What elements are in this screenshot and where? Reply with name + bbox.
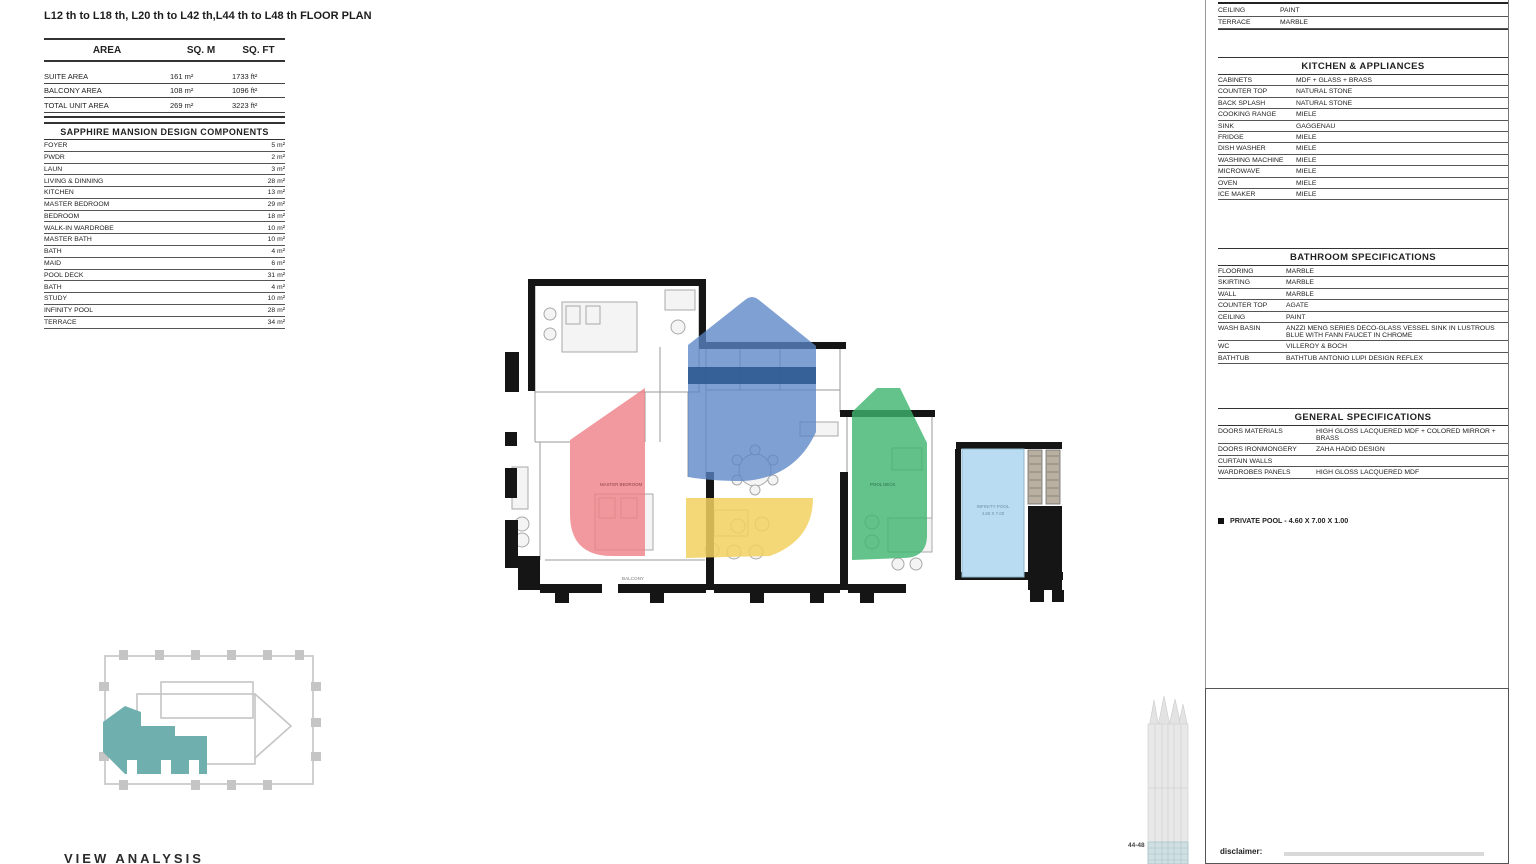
table-cell: MIELE bbox=[1296, 134, 1508, 141]
table-row: PWDR2 m² bbox=[44, 152, 285, 164]
table-cell: VILLEROY & BOCH bbox=[1286, 343, 1508, 350]
table-cell: FRIDGE bbox=[1218, 134, 1296, 141]
table-cell: HIGH GLOSS LACQUERED MDF bbox=[1316, 469, 1508, 476]
table-cell: DOORS IRONMONGERY bbox=[1218, 446, 1316, 453]
table-cell: 18 m² bbox=[243, 213, 285, 220]
tower-crown-spikes bbox=[1149, 696, 1188, 728]
table-row: STUDY10 m² bbox=[44, 293, 285, 305]
table-cell: ANZZI MENG SERIES DECO-GLASS VESSEL SINK… bbox=[1286, 325, 1508, 339]
table-cell: 10 m² bbox=[243, 236, 285, 243]
table-cell: AGATE bbox=[1286, 302, 1508, 309]
private-pool-note-text: PRIVATE POOL - 4.60 X 7.00 X 1.00 bbox=[1230, 516, 1348, 525]
table-cell: COUNTER TOP bbox=[1218, 302, 1286, 309]
kitchen-table-body: CABINETSMDF + GLASS + BRASSCOUNTER TOPNA… bbox=[1218, 75, 1508, 200]
table-cell: SINK bbox=[1218, 123, 1296, 130]
table-cell: MAID bbox=[44, 260, 243, 267]
table-cell: ICE MAKER bbox=[1218, 191, 1296, 198]
private-pool-note: PRIVATE POOL - 4.60 X 7.00 X 1.00 bbox=[1218, 516, 1348, 525]
table-row: CEILINGPAINT bbox=[1218, 4, 1508, 17]
table-row: DISH WASHERMIELE bbox=[1218, 143, 1508, 154]
overlay-red bbox=[570, 388, 645, 556]
table-row: BATHTUBBATHTUB ANTONIO LUPI DESIGN REFLE… bbox=[1218, 353, 1508, 364]
table-row: FOYER5 m² bbox=[44, 140, 285, 152]
table-cell: TERRACE bbox=[1218, 19, 1280, 26]
key-plan bbox=[95, 642, 325, 797]
table-cell: MICROWAVE bbox=[1218, 168, 1296, 175]
overlay-yellow bbox=[686, 498, 813, 558]
table-cell: GAGGENAU bbox=[1296, 123, 1508, 130]
table-row: WASHING MACHINEMIELE bbox=[1218, 155, 1508, 166]
table-cell: CEILING bbox=[1218, 314, 1286, 321]
table-cell: 28 m² bbox=[243, 307, 285, 314]
table-cell: MIELE bbox=[1296, 180, 1508, 187]
table-row: COUNTER TOPNATURAL STONE bbox=[1218, 86, 1508, 97]
bathroom-table: BATHROOM SPECIFICATIONS FLOORINGMARBLESK… bbox=[1218, 248, 1508, 364]
table-row: BEDROOM18 m² bbox=[44, 211, 285, 223]
table-row: DOORS MATERIALSHIGH GLOSS LACQUERED MDF … bbox=[1218, 426, 1508, 444]
table-cell: 4 m² bbox=[243, 284, 285, 291]
table-cell: MARBLE bbox=[1286, 268, 1508, 275]
table-cell: BALCONY AREA bbox=[44, 86, 170, 95]
disclaimer-box: disclaimer: bbox=[1205, 688, 1509, 864]
table-cell: HIGH GLOSS LACQUERED MDF + COLORED MIRRO… bbox=[1316, 428, 1508, 442]
table-cell: NATURAL STONE bbox=[1296, 88, 1508, 95]
table-row: FRIDGEMIELE bbox=[1218, 132, 1508, 143]
table-row: BALCONY AREA108 m²1096 ft² bbox=[44, 84, 285, 99]
table-row: MASTER BEDROOM29 m² bbox=[44, 199, 285, 211]
table-cell: PAINT bbox=[1280, 7, 1508, 14]
table-cell: 28 m² bbox=[243, 178, 285, 185]
table-cell: LAUN bbox=[44, 166, 243, 173]
table-cell: KITCHEN bbox=[44, 189, 243, 196]
table-cell: MIELE bbox=[1296, 191, 1508, 198]
table-cell: 13 m² bbox=[243, 189, 285, 196]
bathroom-table-body: FLOORINGMARBLESKIRTINGMARBLEWALLMARBLECO… bbox=[1218, 266, 1508, 364]
table-row: BACK SPLASHNATURAL STONE bbox=[1218, 98, 1508, 109]
table-cell: COUNTER TOP bbox=[1218, 88, 1296, 95]
bathroom-table-title: BATHROOM SPECIFICATIONS bbox=[1218, 249, 1508, 266]
table-row: COOKING RANGEMIELE bbox=[1218, 109, 1508, 120]
table-cell: WALK-IN WARDROBE bbox=[44, 225, 243, 232]
table-row: FLOORINGMARBLE bbox=[1218, 266, 1508, 277]
table-row: KITCHEN13 m² bbox=[44, 187, 285, 199]
table-cell: 108 m² bbox=[170, 86, 232, 95]
table-cell: CABINETS bbox=[1218, 77, 1296, 84]
tower-silhouette: 44-48 bbox=[1128, 696, 1214, 864]
table-cell: MIELE bbox=[1296, 157, 1508, 164]
table-cell: TOTAL UNIT AREA bbox=[44, 101, 170, 110]
table-cell: INFINITY POOL bbox=[44, 307, 243, 314]
general-table-title: GENERAL SPECIFICATIONS bbox=[1218, 409, 1508, 426]
table-cell: CURTAIN WALLS bbox=[1218, 458, 1316, 465]
table-row: MASTER BATH10 m² bbox=[44, 234, 285, 246]
table-row: MAID6 m² bbox=[44, 258, 285, 270]
kitchen-table-title: KITCHEN & APPLIANCES bbox=[1218, 58, 1508, 75]
table-cell: DOORS MATERIALS bbox=[1218, 428, 1316, 435]
table-cell: MASTER BEDROOM bbox=[44, 201, 243, 208]
area-table-header: AREASQ. MSQ. FT bbox=[44, 40, 285, 62]
table-row: COUNTER TOPAGATE bbox=[1218, 300, 1508, 311]
bullet-square-icon bbox=[1218, 518, 1224, 524]
table-row: WARDROBES PANELSHIGH GLOSS LACQUERED MDF bbox=[1218, 467, 1508, 478]
table-cell: SQ. FT bbox=[232, 45, 285, 56]
table-row: WASH BASINANZZI MENG SERIES DECO-GLASS V… bbox=[1218, 323, 1508, 341]
table-cell: FLOORING bbox=[1218, 268, 1286, 275]
table-row: SUITE AREA161 m²1733 ft² bbox=[44, 69, 285, 84]
table-cell: PWDR bbox=[44, 154, 243, 161]
table-cell: 10 m² bbox=[243, 295, 285, 302]
table-cell: TERRACE bbox=[44, 319, 243, 326]
table-cell: WARDROBES PANELS bbox=[1218, 469, 1316, 476]
infinity-pool-label: INFINITY POOL bbox=[976, 504, 1010, 509]
table-cell: 6 m² bbox=[243, 260, 285, 267]
table-cell: BATH bbox=[44, 248, 243, 255]
components-table-title: SAPPHIRE MANSION DESIGN COMPONENTS bbox=[44, 124, 285, 140]
table-row: WCVILLEROY & BOCH bbox=[1218, 341, 1508, 352]
table-cell: 29 m² bbox=[243, 201, 285, 208]
table-row: INFINITY POOL28 m² bbox=[44, 305, 285, 317]
table-cell: MASTER BATH bbox=[44, 236, 243, 243]
table-cell: SQ. M bbox=[170, 45, 232, 56]
view-analysis-heading: VIEW ANALYSIS bbox=[64, 851, 204, 864]
pool-deck-label: POOL DECK bbox=[870, 482, 896, 487]
table-cell: BATH bbox=[44, 284, 243, 291]
table-cell: 269 m² bbox=[170, 101, 232, 110]
table-cell: MDF + GLASS + BRASS bbox=[1296, 77, 1508, 84]
table-cell: SUITE AREA bbox=[44, 72, 170, 81]
table-cell: MIELE bbox=[1296, 111, 1508, 118]
table-cell: WALL bbox=[1218, 291, 1286, 298]
table-cell: 10 m² bbox=[243, 225, 285, 232]
table-cell: 34 m² bbox=[243, 319, 285, 326]
table-cell: MARBLE bbox=[1286, 291, 1508, 298]
area-table-body: SUITE AREA161 m²1733 ft²BALCONY AREA108 … bbox=[44, 69, 285, 118]
general-table-body: DOORS MATERIALSHIGH GLOSS LACQUERED MDF … bbox=[1218, 426, 1508, 479]
table-cell: BATHTUB ANTONIO LUPI DESIGN REFLEX bbox=[1286, 355, 1508, 362]
table-row: LAUN3 m² bbox=[44, 164, 285, 176]
table-cell: DISH WASHER bbox=[1218, 145, 1296, 152]
table-cell: COOKING RANGE bbox=[1218, 111, 1296, 118]
disclaimer-fine-print bbox=[1284, 852, 1484, 856]
floor-plan-sheet: L12 th to L18 th, L20 th to L42 th,L44 t… bbox=[0, 0, 1536, 864]
table-cell: 3 m² bbox=[243, 166, 285, 173]
table-cell: OVEN bbox=[1218, 180, 1296, 187]
page-title: L12 th to L18 th, L20 th to L42 th,L44 t… bbox=[44, 10, 372, 22]
table-cell: 2 m² bbox=[243, 154, 285, 161]
overlay-blue bbox=[688, 297, 816, 481]
table-row: LIVING & DINNING28 m² bbox=[44, 175, 285, 187]
table-cell: PAINT bbox=[1286, 314, 1508, 321]
floor-plan-drawing: INFINITY POOL 4.60 X 7.00 BALCONY POOL D… bbox=[500, 272, 1065, 607]
table-cell: POOL DECK bbox=[44, 272, 243, 279]
kitchen-table: KITCHEN & APPLIANCES CABINETSMDF + GLASS… bbox=[1218, 57, 1508, 200]
table-cell: BEDROOM bbox=[44, 213, 243, 220]
table-cell: 31 m² bbox=[243, 272, 285, 279]
table-cell: 3223 ft² bbox=[232, 101, 285, 110]
table-cell: MIELE bbox=[1296, 145, 1508, 152]
table-cell: 5 m² bbox=[243, 142, 285, 149]
table-cell: CEILING bbox=[1218, 7, 1280, 14]
table-cell: 1733 ft² bbox=[232, 72, 285, 81]
table-cell: BACK SPLASH bbox=[1218, 100, 1296, 107]
master-bedroom-label: MASTER BEDROOM bbox=[600, 482, 643, 487]
table-cell: 161 m² bbox=[170, 72, 232, 81]
table-row: SKIRTINGMARBLE bbox=[1218, 277, 1508, 288]
table-row: CEILINGPAINT bbox=[1218, 312, 1508, 323]
disclaimer-label: disclaimer: bbox=[1220, 847, 1262, 856]
table-cell: BATHTUB bbox=[1218, 355, 1286, 362]
table-cell: WASH BASIN bbox=[1218, 325, 1286, 332]
stone-columns bbox=[1028, 450, 1060, 504]
table-row: WALLMARBLE bbox=[1218, 289, 1508, 300]
table-row: TERRACE34 m² bbox=[44, 317, 285, 329]
general-table: GENERAL SPECIFICATIONS DOORS MATERIALSHI… bbox=[1218, 408, 1508, 479]
components-table: SAPPHIRE MANSION DESIGN COMPONENTS FOYER… bbox=[44, 122, 285, 329]
finishes-partial-table: CEILINGPAINTTERRACEMARBLE bbox=[1218, 2, 1508, 30]
table-row: OVENMIELE bbox=[1218, 178, 1508, 189]
table-cell: LIVING & DINNING bbox=[44, 178, 243, 185]
table-cell: STUDY bbox=[44, 295, 243, 302]
table-row: AREASQ. MSQ. FT bbox=[44, 40, 285, 62]
table-row: SINKGAGGENAU bbox=[1218, 121, 1508, 132]
table-row: TERRACEMARBLE bbox=[1218, 17, 1508, 30]
table-row: ICE MAKERMIELE bbox=[1218, 189, 1508, 200]
components-table-body: FOYER5 m²PWDR2 m²LAUN3 m²LIVING & DINNIN… bbox=[44, 140, 285, 329]
table-row: POOL DECK31 m² bbox=[44, 270, 285, 282]
table-cell: MARBLE bbox=[1286, 279, 1508, 286]
table-cell: SKIRTING bbox=[1218, 279, 1286, 286]
table-cell: 1096 ft² bbox=[232, 86, 285, 95]
table-row: CABINETSMDF + GLASS + BRASS bbox=[1218, 75, 1508, 86]
area-table: AREASQ. MSQ. FT SUITE AREA161 m²1733 ft²… bbox=[44, 38, 285, 118]
table-cell: NATURAL STONE bbox=[1296, 100, 1508, 107]
table-cell: FOYER bbox=[44, 142, 243, 149]
table-row: TOTAL UNIT AREA269 m²3223 ft² bbox=[44, 98, 285, 113]
overlay-blue-band bbox=[688, 367, 816, 384]
table-cell: AREA bbox=[44, 45, 170, 56]
table-row: MICROWAVEMIELE bbox=[1218, 166, 1508, 177]
balcony-label: BALCONY bbox=[622, 576, 644, 581]
infinity-pool-dims: 4.60 X 7.00 bbox=[982, 511, 1005, 516]
table-cell: ZAHA HADID DESIGN bbox=[1316, 446, 1508, 453]
infinity-pool: INFINITY POOL 4.60 X 7.00 bbox=[962, 449, 1024, 577]
table-cell: WASHING MACHINE bbox=[1218, 157, 1296, 164]
table-cell: MIELE bbox=[1296, 168, 1508, 175]
table-row: DOORS IRONMONGERYZAHA HADID DESIGN bbox=[1218, 444, 1508, 455]
table-row: BATH4 m² bbox=[44, 246, 285, 258]
table-cell: 4 m² bbox=[243, 248, 285, 255]
table-cell: WC bbox=[1218, 343, 1286, 350]
table-row: WALK-IN WARDROBE10 m² bbox=[44, 222, 285, 234]
table-cell: MARBLE bbox=[1280, 19, 1508, 26]
tower-floors-label: 44-48 bbox=[1128, 842, 1145, 849]
table-row: BATH4 m² bbox=[44, 281, 285, 293]
table-row: CURTAIN WALLS bbox=[1218, 456, 1508, 467]
